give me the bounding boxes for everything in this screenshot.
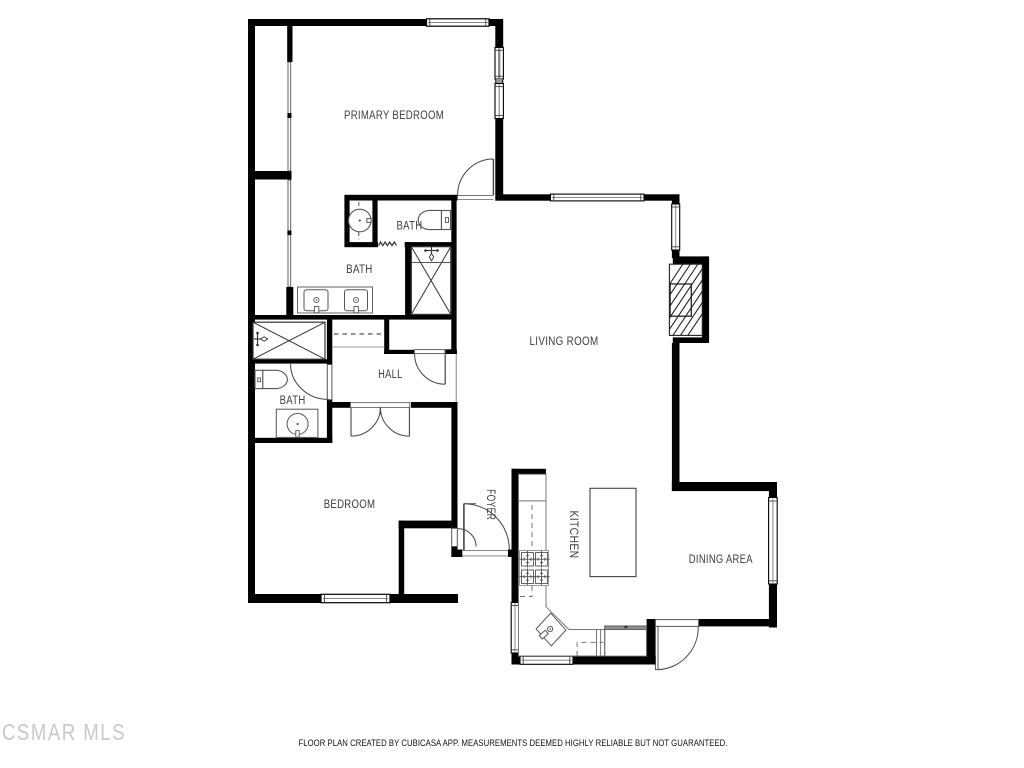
svg-text:BATH: BATH <box>346 262 373 276</box>
svg-text:DINING AREA: DINING AREA <box>689 552 753 566</box>
svg-text:CSMAR MLS: CSMAR MLS <box>2 719 126 745</box>
svg-text:HALL: HALL <box>378 367 403 381</box>
svg-text:FOYER: FOYER <box>484 489 498 520</box>
svg-text:FLOOR PLAN CREATED BY CUBICASA: FLOOR PLAN CREATED BY CUBICASA APP. MEAS… <box>299 738 728 748</box>
svg-text:BATH: BATH <box>280 393 306 407</box>
svg-text:KITCHEN: KITCHEN <box>567 511 581 559</box>
svg-text:PRIMARY BEDROOM: PRIMARY BEDROOM <box>344 108 444 122</box>
svg-text:BEDROOM: BEDROOM <box>324 497 376 511</box>
svg-text:LIVING ROOM: LIVING ROOM <box>530 334 599 348</box>
svg-text:BATH: BATH <box>397 219 423 233</box>
